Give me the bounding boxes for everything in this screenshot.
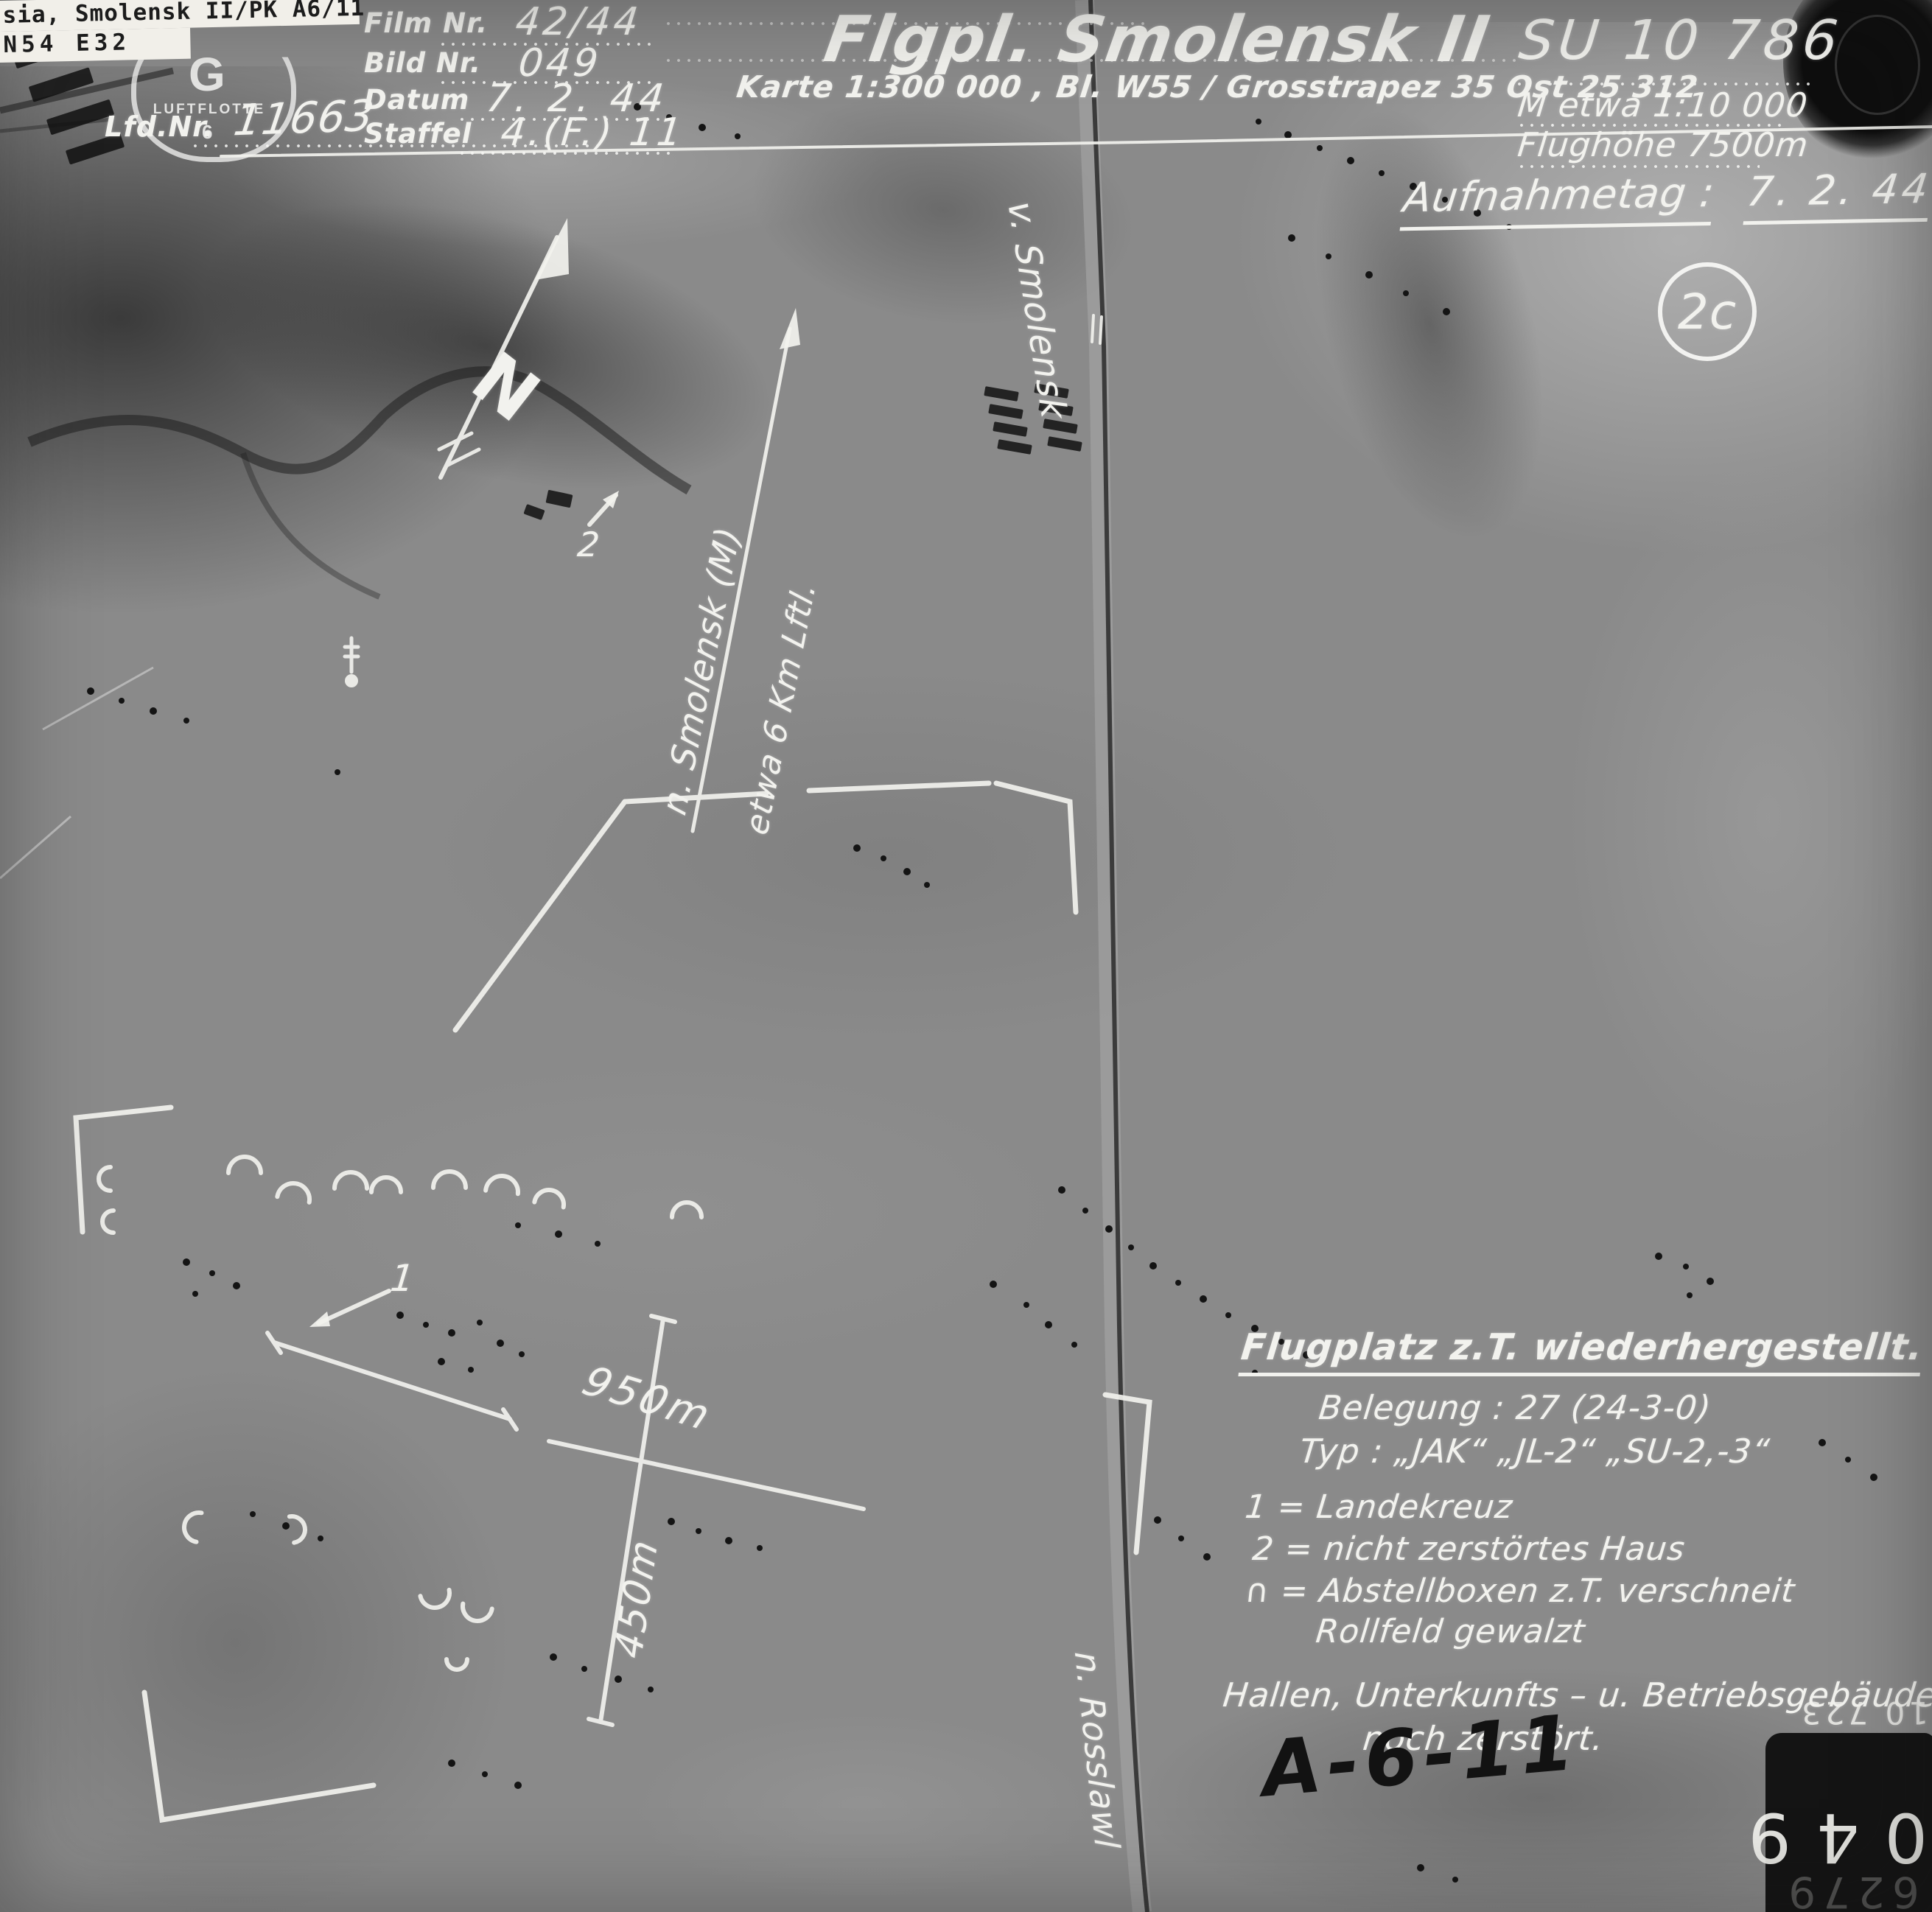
signal-mark-dot — [345, 674, 358, 687]
revetment-arc — [335, 1172, 367, 1188]
page-title: Flgpl. Smolensk II — [819, 3, 1495, 77]
lfd-nr-label: Lfd.Nr. — [105, 111, 214, 143]
photo-ref: SU 10 786 — [1516, 9, 1845, 72]
notes-belegung: Belegung : 27 (24-3-0) — [1317, 1388, 1932, 1427]
sortie-circle: 2c — [1658, 262, 1757, 361]
boundary-bracket — [455, 802, 625, 1030]
aerial-photo: sia, Smolensk II/PK A6/11 N54 E32 G LUFT… — [0, 0, 1932, 1912]
revetment-arc — [99, 1167, 111, 1191]
film-nr-label: Film Nr. — [364, 7, 488, 39]
corner-box-digits-large: 049 — [1773, 1798, 1928, 1877]
boundary-bracket — [1105, 1395, 1149, 1552]
scale-note: M etwa 1:10 000 — [1516, 85, 1810, 125]
paper-label-line1: sia, Smolensk II/PK A6/11 — [2, 0, 349, 29]
boundary-bracket — [144, 1692, 374, 1820]
notes-typ: Typ : „JAK“ „JL-2“ „SU-2,-3“ — [1298, 1432, 1932, 1471]
datum-label: Datum — [364, 84, 469, 116]
boundary-bracket — [76, 1107, 171, 1232]
bridge-mark — [1100, 317, 1102, 343]
boundary-bracket — [996, 783, 1076, 912]
revetment-arc — [534, 1188, 566, 1208]
dotted-rule — [1516, 165, 1760, 168]
corner-dark-box: 049 6279 — [1765, 1733, 1932, 1912]
notes-legend-boxes-cont: Rollfeld gewalzt — [1314, 1613, 1932, 1650]
paper-label-line2: N54 E32 — [3, 28, 181, 58]
revetment-arc — [102, 1211, 113, 1233]
notes-legend-1: 1 = Landekreuz — [1243, 1488, 1932, 1526]
paper-label: sia, Smolensk II/PK A6/11 N54 E32 — [0, 0, 360, 63]
measure-tick — [589, 1719, 612, 1725]
north-arrowhead — [535, 218, 569, 280]
corner-box-digits-faint: 6279 — [1780, 1867, 1920, 1912]
notes-legend-boxes: ∩ = Abstellboxen z.T. verschneit — [1243, 1572, 1932, 1610]
revetment-arc — [277, 1181, 312, 1202]
boundary-bracket — [809, 783, 989, 791]
aufnahmetag-label: Aufnahmetag : — [1400, 169, 1718, 231]
film-nr-value: 42/44 — [514, 0, 643, 44]
aufnahmetag-annotation: Aufnahmetag : 7. 2. 44 — [1401, 165, 1932, 222]
revetment-arc — [486, 1174, 519, 1194]
flight-altitude: Flughöhe 7500m — [1516, 125, 1810, 164]
measure-tick — [651, 1316, 675, 1322]
revetment-arc — [672, 1202, 701, 1217]
staffel-value: 4.(F.) 11 — [499, 111, 687, 155]
landing-cross-arm — [549, 1441, 864, 1509]
measure-950-line — [274, 1342, 510, 1419]
staffel-label: Staffel — [364, 118, 472, 150]
marker-2-label: 2 — [575, 525, 602, 564]
sortie-mark: 2c — [1678, 284, 1737, 340]
bild-nr-label: Bild Nr. — [364, 47, 481, 79]
notes-legend-2: 2 = nicht zerstörtes Haus — [1250, 1530, 1932, 1568]
revetment-arc — [447, 1659, 467, 1670]
revetment-arc — [433, 1172, 466, 1188]
plate-number: 10 723 — [1798, 1695, 1928, 1731]
marker-1-arrow — [318, 1291, 389, 1323]
bridge-mark — [1092, 315, 1093, 342]
notes-block: Flugplatz z.T. wiederhergestellt. Belegu… — [1223, 1326, 1931, 1683]
revetment-arc — [461, 1604, 492, 1624]
notes-title: Flugplatz z.T. wiederhergestellt. — [1238, 1326, 1925, 1376]
revetment-arc — [420, 1590, 452, 1611]
revetment-arc — [290, 1514, 307, 1543]
direction-arrowhead — [780, 308, 800, 349]
aufnahmetag-value: 7. 2. 44 — [1743, 165, 1932, 225]
revetment-arc — [371, 1177, 401, 1192]
marker-1-arrowhead — [309, 1312, 330, 1327]
lfd-nr-value: 11663 — [231, 91, 377, 146]
marker-1-label: 1 — [388, 1257, 417, 1300]
revetment-arc — [182, 1510, 202, 1542]
revetment-arc — [228, 1157, 261, 1173]
